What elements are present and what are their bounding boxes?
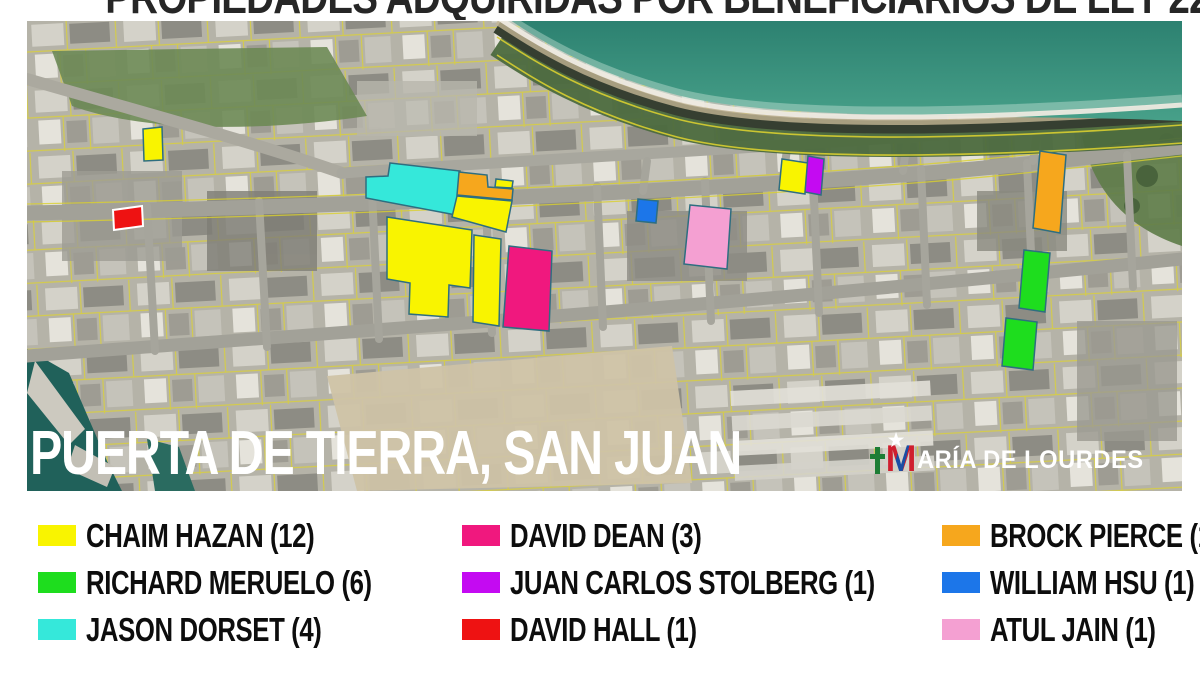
legend-swatch <box>38 619 76 640</box>
infographic-page: PROPIEDADES ADQUIRIDAS POR BENEFICIARIOS… <box>0 0 1200 675</box>
legend-swatch <box>38 525 76 546</box>
legend-label: WILLIAM HSU (1) <box>990 566 1194 599</box>
legend-label: BROCK PIERCE (1) <box>990 519 1200 552</box>
legend-swatch <box>942 525 980 546</box>
legend-label: JUAN CARLOS STOLBERG (1) <box>510 566 875 599</box>
parcel-juan-carlos-stolberg <box>805 156 824 195</box>
legend-item: JASON DORSET (4) <box>38 606 452 653</box>
page-title-text: PROPIEDADES ADQUIRIDAS POR BENEFICIARIOS… <box>105 0 1200 20</box>
parcel-william-hsu <box>636 199 658 223</box>
brand-watermark: ★ M ARÍA DE LOURDES <box>870 443 1156 477</box>
cross-icon <box>870 447 885 474</box>
legend-swatch <box>462 572 500 593</box>
parcel-chaim-hazan <box>473 235 501 326</box>
parcel-atul-jain <box>684 205 731 269</box>
legend-label: ATUL JAIN (1) <box>990 613 1156 646</box>
parcel-david-hall <box>113 206 143 230</box>
brand-logo-m: ★ M <box>886 444 917 476</box>
satellite-map: PUERTA DE TIERRA, SAN JUAN ★ M ARÍA DE L… <box>27 21 1182 491</box>
legend-swatch <box>462 525 500 546</box>
parcel-richard-meruelo <box>1002 318 1037 370</box>
legend-item: WILLIAM HSU (1) <box>942 559 1200 606</box>
legend-swatch <box>942 572 980 593</box>
legend-item: RICHARD MERUELO (6) <box>38 559 452 606</box>
legend-column-2: DAVID DEAN (3)JUAN CARLOS STOLBERG (1)DA… <box>462 512 978 653</box>
legend-item: CHAIM HAZAN (12) <box>38 512 452 559</box>
legend-column-3: BROCK PIERCE (1)WILLIAM HSU (1)ATUL JAIN… <box>942 512 1200 653</box>
legend-label: DAVID HALL (1) <box>510 613 697 646</box>
parcel-chaim-hazan <box>495 179 513 188</box>
legend-swatch <box>38 572 76 593</box>
legend-swatch <box>942 619 980 640</box>
legend-item: DAVID DEAN (3) <box>462 512 978 559</box>
legend-label: JASON DORSET (4) <box>86 613 321 646</box>
legend-label: CHAIM HAZAN (12) <box>86 519 314 552</box>
parcel-richard-meruelo <box>1019 250 1050 312</box>
star-icon: ★ <box>887 430 906 451</box>
parcel-chaim-hazan <box>143 127 163 161</box>
legend-label: DAVID DEAN (3) <box>510 519 701 552</box>
parcel-david-dean <box>503 246 552 331</box>
legend-swatch <box>462 619 500 640</box>
parcel-chaim-hazan <box>779 159 808 194</box>
page-title: PROPIEDADES ADQUIRIDAS POR BENEFICIARIOS… <box>0 0 1200 20</box>
legend-item: JUAN CARLOS STOLBERG (1) <box>462 559 978 606</box>
map-location-label: PUERTA DE TIERRA, SAN JUAN <box>30 423 741 485</box>
legend-label: RICHARD MERUELO (6) <box>86 566 372 599</box>
legend-item: ATUL JAIN (1) <box>942 606 1200 653</box>
legend-item: BROCK PIERCE (1) <box>942 512 1200 559</box>
legend-column-1: CHAIM HAZAN (12)RICHARD MERUELO (6)JASON… <box>38 512 452 653</box>
legend-item: DAVID HALL (1) <box>462 606 978 653</box>
brand-name: ARÍA DE LOURDES <box>917 446 1144 475</box>
